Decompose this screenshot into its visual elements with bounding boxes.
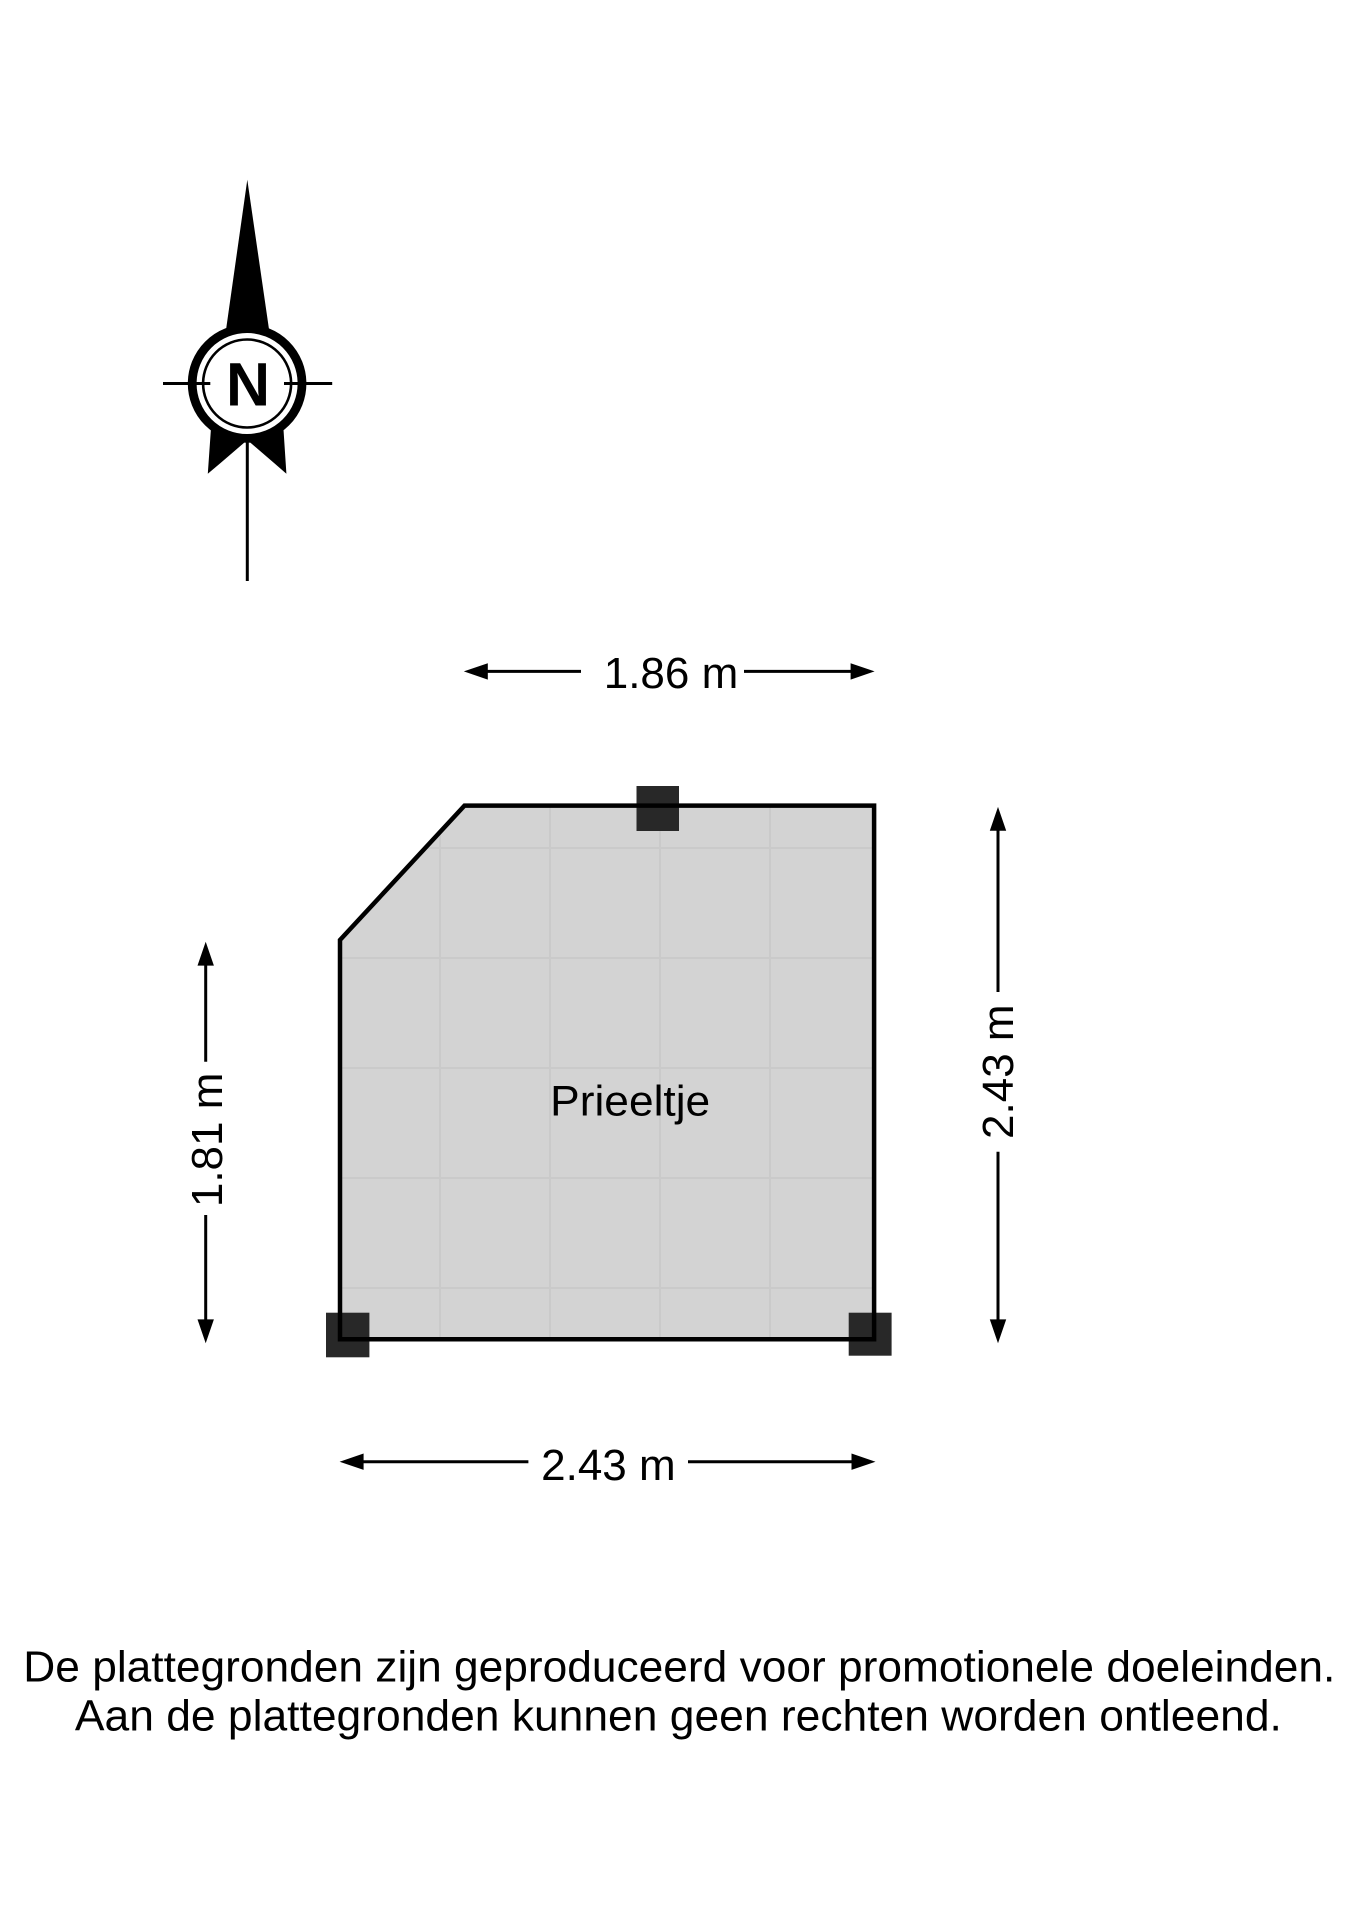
svg-text:Prieeltje: Prieeltje	[550, 1079, 710, 1126]
svg-text:1.81 m: 1.81 m	[183, 1073, 232, 1208]
svg-text:2.43 m: 2.43 m	[541, 1441, 676, 1490]
svg-text:N: N	[226, 351, 270, 419]
svg-text:1.86 m: 1.86 m	[604, 649, 739, 698]
svg-text:2.43 m: 2.43 m	[974, 1004, 1023, 1139]
svg-text:De plattegronden zijn geproduc: De plattegronden zijn geproduceerd voor …	[23, 1642, 1335, 1691]
svg-text:Aan de plattegronden kunnen ge: Aan de plattegronden kunnen geen rechten…	[75, 1692, 1282, 1741]
